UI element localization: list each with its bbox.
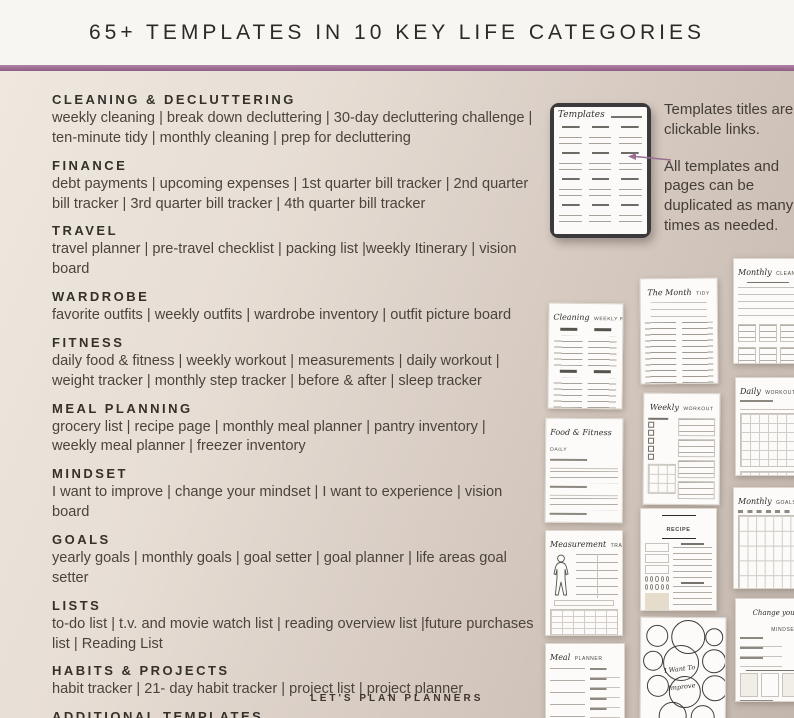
weekday-block xyxy=(586,370,617,409)
category-items: to-do list | t.v. and movie watch list |… xyxy=(52,615,534,655)
workout-right-column xyxy=(678,418,716,499)
tablet-screen-header: Templates xyxy=(558,110,643,123)
checkbox xyxy=(648,422,654,428)
category-heading: FINANCE xyxy=(52,158,534,173)
subtitle-line xyxy=(747,282,789,283)
checkbox xyxy=(648,438,654,444)
thumbnail-title-caps: TRACKER xyxy=(611,543,623,549)
entry-row xyxy=(550,486,618,496)
weekday-block xyxy=(587,328,618,367)
thumbnail-title-caps: GOALS xyxy=(776,500,794,506)
entry-row xyxy=(740,647,782,657)
thumbnail-monthly-goals: Monthly GOALS xyxy=(733,487,794,589)
info-box xyxy=(645,543,669,552)
category-heading: HABITS & PROJECTS xyxy=(52,663,534,678)
thumbnail-title: Change your MINDSET xyxy=(740,603,794,635)
measurement-columns xyxy=(576,554,618,598)
category-items: yearly goals | monthly goals | goal sett… xyxy=(52,549,534,589)
section-heading xyxy=(681,543,704,545)
weekday-header xyxy=(738,510,794,513)
category-heading: ADDITIONAL TEMPLATES xyxy=(52,709,534,718)
thumbnail-weekly-workout: Weekly WORKOUT xyxy=(643,393,721,506)
thumbnail-title-script: Improve xyxy=(668,682,696,693)
category-heading: MINDSET xyxy=(52,466,534,481)
entry-row xyxy=(590,678,620,688)
section-box xyxy=(738,324,756,342)
thumbnail-title-caps: WORKOUT xyxy=(765,390,794,396)
category-section-goals: GOALS yearly goals | monthly goals | goa… xyxy=(52,532,534,589)
thumbnail-title: Weekly WORKOUT xyxy=(648,398,715,415)
checklist-column xyxy=(645,322,677,384)
entry-lines xyxy=(550,471,618,483)
category-heading: GOALS xyxy=(52,532,534,547)
template-thumbnails: Cleaning WEEKLY ROUTINE The Month TIDY xyxy=(520,255,794,718)
section-box xyxy=(759,347,777,364)
photo-placeholder xyxy=(645,593,669,611)
entry-row xyxy=(740,657,782,667)
category-items: daily food & fitness | weekly workout | … xyxy=(52,352,534,392)
tablet-screen-title: Templates xyxy=(558,110,605,120)
section-box xyxy=(780,324,794,342)
thumbnail-title: Meal PLANNER xyxy=(550,648,620,664)
thumbnail-change-your-mindset: Change your MINDSET xyxy=(735,598,794,702)
thumbnail-title-script: Cleaning xyxy=(553,313,589,322)
weekday-block xyxy=(552,369,583,408)
workout-left-column xyxy=(648,418,675,499)
thumbnail-title-caps: MINDSET xyxy=(771,627,794,633)
tablet-mockup: Templates xyxy=(550,103,651,238)
brand-footer: LET'S PLAN PLANNERS xyxy=(0,693,794,704)
entry-row xyxy=(550,513,618,523)
entry-lines xyxy=(550,498,618,510)
thumbnail-title: I Want To Improve xyxy=(663,656,698,696)
category-section-meal-planning: MEAL PLANNING grocery list | recipe page… xyxy=(52,401,534,458)
category-heading: TRAVEL xyxy=(52,223,534,238)
recipe-body xyxy=(645,543,712,611)
entry-row xyxy=(740,637,782,647)
list-heading xyxy=(648,418,668,420)
page-title: 65+ TEMPLATES IN 10 KEY LIFE CATEGORIES xyxy=(89,21,705,45)
thumbnail-title-caps: WORKOUT xyxy=(683,406,713,412)
category-section-cleaning: CLEANING & DECLUTTERING weekly cleaning … xyxy=(52,92,534,149)
checkbox xyxy=(648,430,654,436)
section-box xyxy=(738,347,756,364)
category-heading: LISTS xyxy=(52,598,534,613)
thumbnail-month-tidy: The Month TIDY xyxy=(640,278,719,385)
thumbnail-title-caps: CLEANING xyxy=(776,271,794,277)
recipe-left-column xyxy=(645,543,669,611)
brand-name: LET'S PLAN PLANNERS xyxy=(311,693,484,704)
measurement-table xyxy=(550,609,618,636)
thumbnail-title-script: Food & Fitness xyxy=(550,428,612,437)
thumbnail-title-caps: WEEKLY ROUTINE xyxy=(594,316,624,323)
category-heading: FITNESS xyxy=(52,335,534,350)
thumbnail-title-caps: TIDY xyxy=(696,291,710,297)
checkbox xyxy=(648,446,654,452)
thumbnail-title-script: Weekly xyxy=(650,403,679,412)
thumbnail-title: The Month TIDY xyxy=(645,283,713,300)
tablet-mini-list xyxy=(617,204,643,227)
thumbnail-title-script: Measurement xyxy=(550,540,606,549)
workout-box xyxy=(678,460,715,478)
thumbnail-recipe: RECIPE xyxy=(640,508,717,611)
category-section-travel: TRAVEL travel planner | pre-travel check… xyxy=(52,223,534,280)
tablet-mini-list xyxy=(558,126,584,149)
categories-list: CLEANING & DECLUTTERING weekly cleaning … xyxy=(52,92,534,718)
tablet-mini-list xyxy=(588,204,614,227)
category-section-finance: FINANCE debt payments | upcoming expense… xyxy=(52,158,534,215)
thumbnail-food-fitness-daily: Food & Fitness DAILY xyxy=(545,418,624,524)
category-heading: CLEANING & DECLUTTERING xyxy=(52,92,534,107)
header: 65+ TEMPLATES IN 10 KEY LIFE CATEGORIES xyxy=(0,0,794,65)
workout-box xyxy=(678,439,715,457)
category-items: favorite outfits | weekly outfits | ward… xyxy=(52,306,534,326)
tablet-mini-list xyxy=(588,126,614,149)
checklist-column xyxy=(682,322,714,384)
recipe-right-column xyxy=(673,543,712,611)
category-section-wardrobe: WARDROBE favorite outfits | weekly outfi… xyxy=(52,289,534,326)
tablet-screen: Templates xyxy=(554,107,647,234)
category-section-additional: ADDITIONAL TEMPLATES password tracker | … xyxy=(52,709,534,718)
workout-grid xyxy=(740,413,794,467)
checklist-columns xyxy=(645,322,714,385)
category-heading: WARDROBE xyxy=(52,289,534,304)
measurement-body xyxy=(550,554,618,598)
thumbnail-title: Monthly CLEANING xyxy=(738,263,794,280)
entry-row xyxy=(590,668,620,678)
thumbnail-title: Monthly GOALS xyxy=(738,492,794,508)
mini-table xyxy=(648,464,676,494)
category-items: I want to improve | change your mindset … xyxy=(52,483,534,523)
thumbnail-meal-planner: Meal PLANNER xyxy=(545,643,625,718)
tablet-mini-list xyxy=(617,126,643,149)
thumbnail-title-script: Change your xyxy=(753,609,794,617)
category-items: weekly cleaning | break down declutterin… xyxy=(52,109,534,149)
section-heading xyxy=(746,670,794,671)
checkbox xyxy=(648,454,654,460)
info-box xyxy=(645,565,669,574)
category-items: debt payments | upcoming expenses | 1st … xyxy=(52,175,534,215)
note-clickable-links: Templates titles are clickable links. xyxy=(664,100,794,140)
tablet-mini-list xyxy=(558,152,584,175)
section-box xyxy=(759,324,777,342)
category-section-fitness: FITNESS daily food & fitness | weekly wo… xyxy=(52,335,534,392)
category-items: travel planner | pre-travel checklist | … xyxy=(52,240,534,280)
thumbnail-title-caps: DAILY xyxy=(550,447,567,453)
total-box xyxy=(554,600,614,606)
category-heading: MEAL PLANNING xyxy=(52,401,534,416)
thumbnail-measurement-tracker: Measurement TRACKER xyxy=(545,530,623,636)
workout-box xyxy=(678,418,715,436)
tablet-mini-list xyxy=(558,178,584,201)
notes: Templates titles are clickable links. Al… xyxy=(664,100,794,253)
summary-grid xyxy=(740,471,794,476)
workout-box xyxy=(678,481,715,499)
tablet-column-headers xyxy=(605,110,643,120)
category-section-lists: LISTS to-do list | t.v. and movie watch … xyxy=(52,598,534,655)
thumbnail-cleaning-weekly-routine: Cleaning WEEKLY ROUTINE xyxy=(547,303,623,410)
body-figure-icon xyxy=(550,554,572,598)
main-area: CLEANING & DECLUTTERING weekly cleaning … xyxy=(0,71,794,718)
thumbnail-title-script: The Month xyxy=(647,288,691,297)
weekday-blocks xyxy=(552,327,618,409)
ruled-lines xyxy=(738,287,794,319)
tablet-mini-list xyxy=(617,178,643,201)
section-boxes xyxy=(738,347,794,364)
category-section-mindset: MINDSET I want to improve | change your … xyxy=(52,466,534,523)
rating-dots xyxy=(645,584,669,590)
section-heading xyxy=(681,582,704,584)
section-boxes xyxy=(738,324,794,342)
rating-dots xyxy=(645,576,669,582)
thumbnail-monthly-cleaning: Monthly CLEANING xyxy=(733,258,794,364)
entry-row xyxy=(590,708,620,718)
tablet-mini-list xyxy=(558,204,584,227)
thumbnail-title: Daily WORKOUT xyxy=(740,382,794,398)
thumbnail-daily-workout: Daily WORKOUT xyxy=(735,377,794,476)
thumbnail-title-script: Monthly xyxy=(738,268,772,277)
tablet-mini-list xyxy=(588,152,614,175)
weekday-block xyxy=(553,327,584,366)
thumbnail-title-script: I Want To xyxy=(664,663,696,675)
entry-row xyxy=(550,459,618,469)
ingredient-lines xyxy=(673,547,712,579)
thumbnail-title-caps: RECIPE xyxy=(666,527,690,533)
thumbnail-title: Food & Fitness DAILY xyxy=(550,423,618,455)
recipe-badge: RECIPE xyxy=(662,515,696,539)
thumbnail-title: Cleaning WEEKLY ROUTINE xyxy=(553,308,618,325)
direction-lines xyxy=(673,586,712,611)
note-duplicate-pages: All templates and pages can be duplicate… xyxy=(664,157,794,236)
tablet-template-index xyxy=(558,126,643,227)
workout-body xyxy=(648,418,716,499)
section-box xyxy=(780,347,794,364)
thumbnail-title-script: Daily xyxy=(740,387,761,396)
entry-row xyxy=(740,400,794,410)
thumbnail-title-caps: PLANNER xyxy=(575,656,603,662)
intro-paragraph-lines xyxy=(651,302,707,318)
calendar-grid xyxy=(738,515,794,589)
thumbnail-title: Measurement TRACKER xyxy=(550,535,618,552)
info-box xyxy=(645,554,669,563)
thumbnail-title-script: Monthly xyxy=(738,497,772,506)
category-items: grocery list | recipe page | monthly mea… xyxy=(52,418,534,458)
tablet-mini-list xyxy=(588,178,614,201)
thumbnail-title-script: Meal xyxy=(550,653,570,662)
